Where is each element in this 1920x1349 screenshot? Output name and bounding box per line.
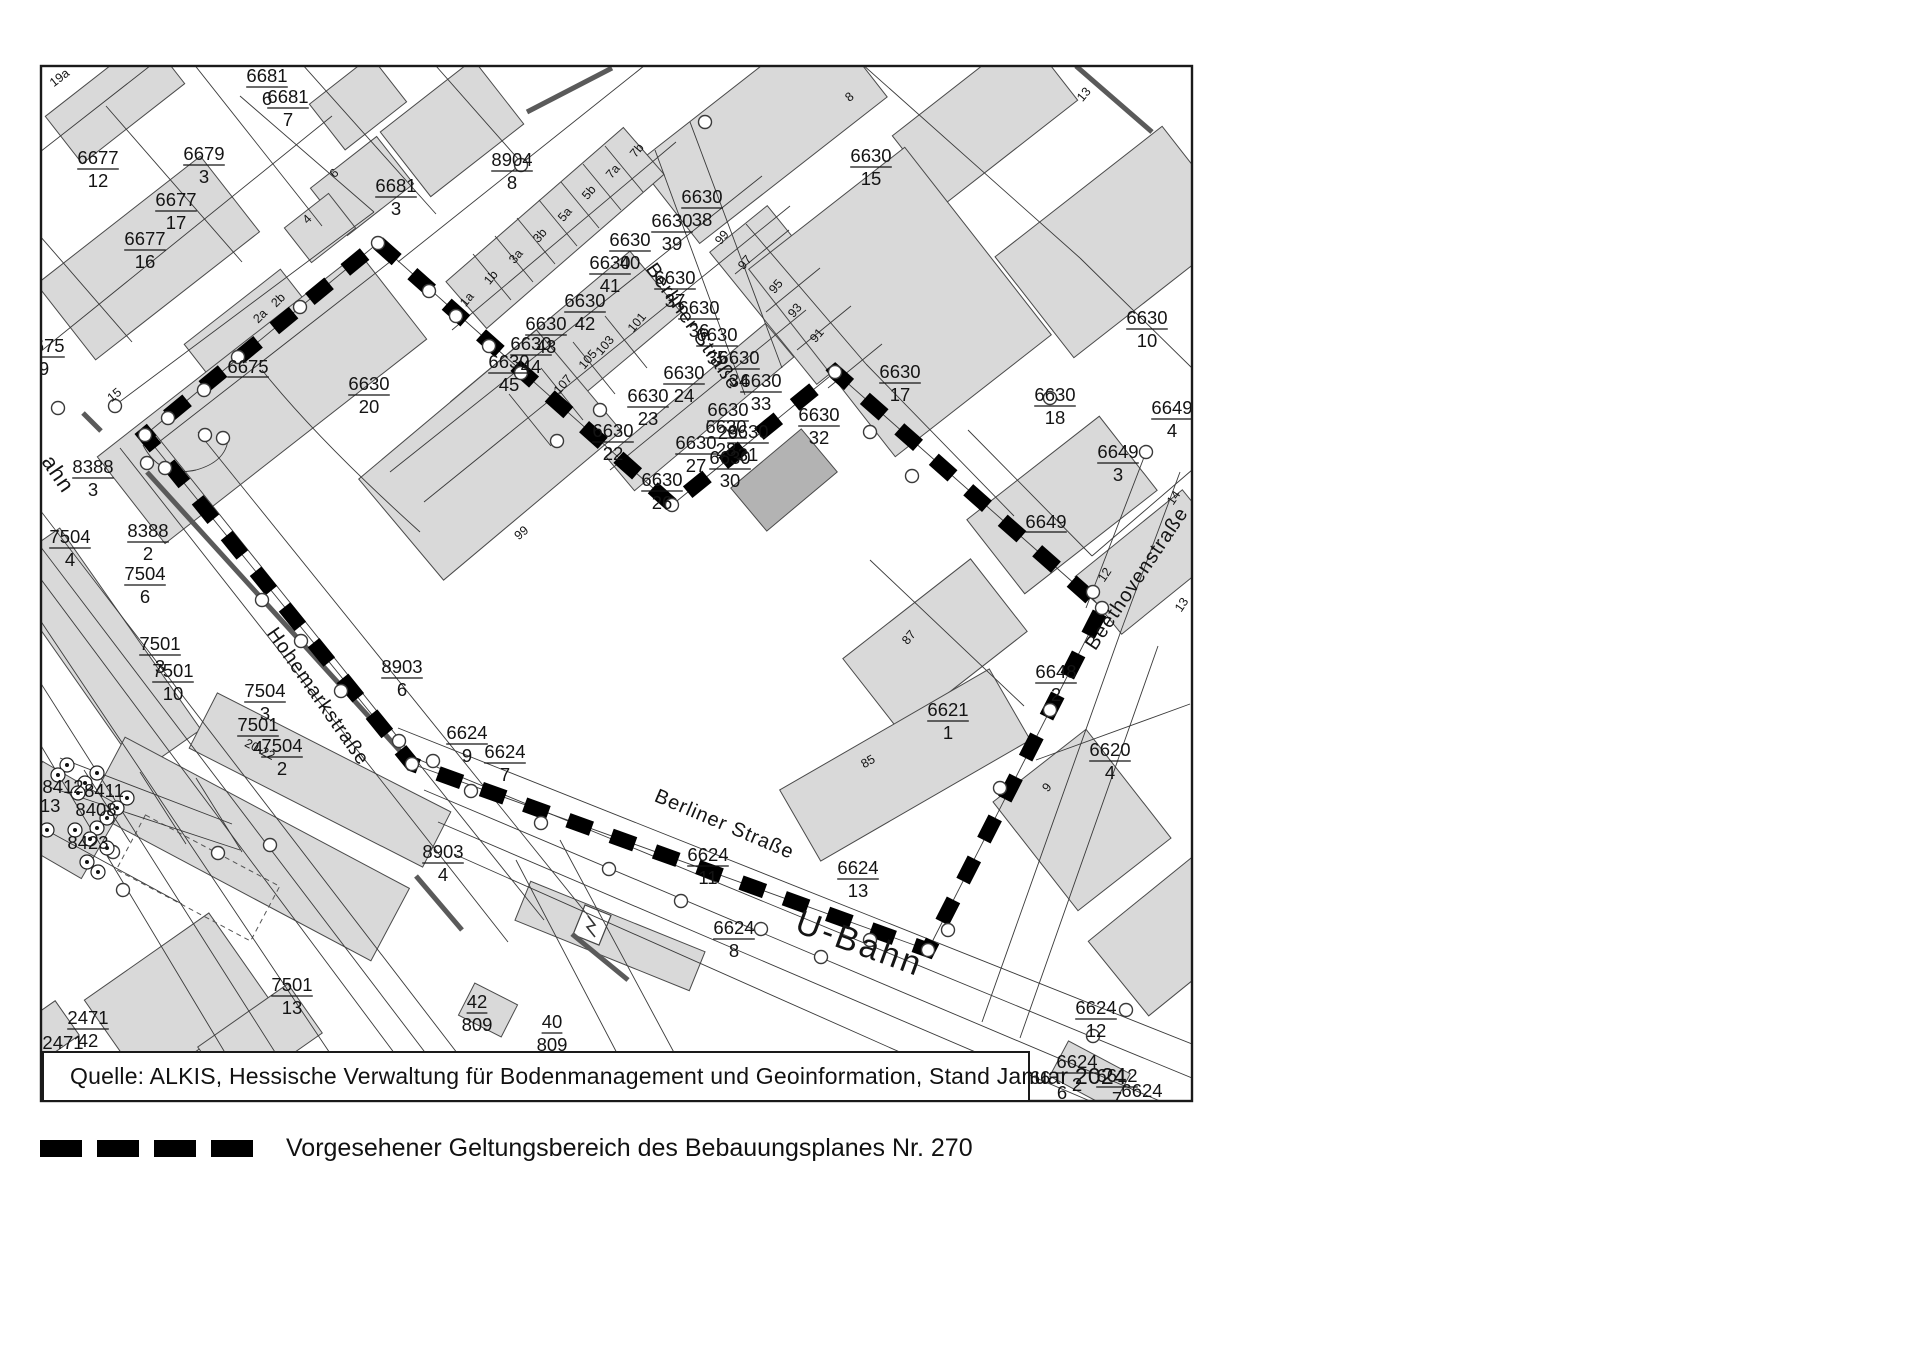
parcel-number: 8904: [491, 149, 532, 170]
parcel-number: 6675: [227, 356, 268, 377]
parcel-number: 42: [467, 991, 488, 1012]
parcel-denominator: 39: [662, 233, 683, 254]
boundary-point-circle: [199, 429, 212, 442]
legend: Vorgesehener Geltungsbereich des Bebauun…: [40, 1130, 973, 1166]
single-parcel-label: 8408: [75, 799, 116, 820]
parcel-number: 6677: [124, 228, 165, 249]
parcel-denominator: 27: [686, 455, 707, 476]
parcel-number: 6630: [850, 145, 891, 166]
parcel-number: 6624: [1075, 997, 1116, 1018]
parcel-denominator: 32: [809, 427, 830, 448]
parcel-number: 6681: [246, 65, 287, 86]
parcel-number: 8408: [75, 799, 116, 820]
parcel-number: 413: [30, 795, 61, 816]
parcel-number: 6630: [525, 313, 566, 334]
survey-marker-dot: [95, 826, 99, 830]
boundary-point-circle: [406, 758, 419, 771]
boundary-point-circle: [294, 301, 307, 314]
parcel-denominator: 17: [890, 384, 911, 405]
single-parcel-label: 6675: [227, 356, 269, 377]
boundary-point-circle: [372, 237, 385, 250]
parcel-number: 6630: [740, 370, 781, 391]
parcel-number: 8903: [381, 656, 422, 677]
parcel-denominator: 18: [1045, 407, 1066, 428]
survey-marker-dot: [85, 860, 89, 864]
parcel-number: 6624: [837, 857, 878, 878]
survey-marker-dot: [125, 796, 129, 800]
boundary-point-circle: [159, 462, 172, 475]
page: { "title": "Kartenausschnitt Geltungsber…: [0, 0, 1920, 1344]
parcel-denominator: 4: [65, 549, 75, 570]
boundary-point-circle: [1087, 586, 1100, 599]
boundary-point-circle: [829, 366, 842, 379]
parcel-number: 6630: [798, 404, 839, 425]
parcel-number: 7501: [139, 633, 180, 654]
parcel-number: 6681: [375, 175, 416, 196]
parcel-number: 8388: [127, 520, 168, 541]
map-container: 6681666817667712667936677176681389048667…: [0, 0, 1920, 1344]
legend-dash-icon: [211, 1140, 253, 1157]
single-parcel-label: 8423: [67, 832, 108, 853]
parcel-denominator: 2: [1051, 684, 1061, 705]
parcel-number: 6679: [183, 143, 224, 164]
boundary-dash-symbol: [40, 1140, 268, 1157]
parcel-number: 8412: [42, 776, 83, 797]
parcel-number: 40: [542, 1011, 563, 1032]
boundary-point-circle: [117, 884, 130, 897]
boundary-point-circle: [603, 863, 616, 876]
boundary-point-circle: [864, 426, 877, 439]
parcel-denominator: 7: [283, 109, 293, 130]
parcel-denominator: 4: [1167, 420, 1177, 441]
parcel-number: 2471: [67, 1007, 108, 1028]
boundary-point-circle: [535, 817, 548, 830]
parcel-denominator: 10: [1137, 330, 1158, 351]
parcel-number: 7504: [124, 563, 165, 584]
boundary-point-circle: [1120, 1004, 1133, 1017]
parcel-number: 6649: [1025, 511, 1066, 532]
parcel-denominator: 45: [499, 374, 520, 395]
boundary-point-circle: [465, 785, 478, 798]
source-box: Quelle: ALKIS, Hessische Verwaltung für …: [42, 1051, 1030, 1102]
single-parcel-label: 413: [30, 795, 61, 816]
boundary-point-circle: [198, 384, 211, 397]
parcel-number: 6630: [651, 210, 692, 231]
boundary-point-circle: [551, 435, 564, 448]
boundary-point-circle: [423, 285, 436, 298]
parcel-number: 6624: [1121, 1080, 1162, 1101]
boundary-point-circle: [141, 457, 154, 470]
survey-marker-dot: [65, 763, 69, 767]
parcel-number: 6675: [23, 335, 64, 356]
parcel-denominator: 2: [143, 543, 153, 564]
boundary-point-circle: [393, 735, 406, 748]
parcel-number: 6624: [687, 844, 728, 865]
parcel-number: 6630: [564, 290, 605, 311]
parcel-denominator: 30: [720, 470, 741, 491]
parcel-denominator: 33: [751, 393, 772, 414]
single-parcel-label: 8412: [42, 776, 83, 797]
parcel-number: 7504: [244, 680, 285, 701]
parcel-number: 8423: [67, 832, 108, 853]
parcel-number: 7501: [271, 974, 312, 995]
boundary-point-circle: [815, 951, 828, 964]
parcel-denominator: 17: [166, 212, 187, 233]
boundary-point-circle: [594, 404, 607, 417]
boundary-point-circle: [162, 412, 175, 425]
boundary-point-circle: [52, 402, 65, 415]
parcel-number: 7504: [49, 526, 90, 547]
parcel-number: 6677: [77, 147, 118, 168]
source-text: Quelle: ALKIS, Hessische Verwaltung für …: [70, 1063, 1127, 1090]
parcel-denominator: 9: [462, 745, 472, 766]
boundary-point-circle: [256, 594, 269, 607]
parcel-denominator: 12: [88, 170, 109, 191]
parcel-number: 6630: [879, 361, 920, 382]
boundary-point-circle: [994, 782, 1007, 795]
parcel-number: 6624: [713, 917, 754, 938]
single-parcel-label: 2471: [42, 1032, 84, 1053]
parcel-denominator: 12: [1086, 1020, 1107, 1041]
parcel-number: 6630: [627, 385, 668, 406]
boundary-point-circle: [906, 470, 919, 483]
parcel-number: 6620: [1089, 739, 1130, 760]
boundary-point-circle: [335, 685, 348, 698]
boundary-point-circle: [212, 847, 225, 860]
parcel-number: 6630: [1126, 307, 1167, 328]
parcel-number: 6630: [589, 252, 630, 273]
boundary-point-circle: [450, 310, 463, 323]
parcel-number: 8903: [422, 841, 463, 862]
parcel-number: 2471: [42, 1032, 83, 1053]
parcel-number: 6630: [663, 362, 704, 383]
parcel-denominator: 3: [88, 479, 98, 500]
parcel-number: 6630: [592, 420, 633, 441]
parcel-denominator: 20: [359, 396, 380, 417]
parcel-denominator: 4: [1105, 762, 1115, 783]
parcel-number: 6624: [446, 722, 487, 743]
parcel-number: 6630: [609, 229, 650, 250]
parcel-number: 6648: [1035, 661, 1076, 682]
legend-dash-icon: [154, 1140, 196, 1157]
parcel-denominator: 8: [729, 940, 739, 961]
parcel-denominator: 11: [698, 867, 717, 888]
boundary-point-circle: [264, 839, 277, 852]
single-parcel-label: 8411: [84, 780, 124, 801]
parcel-denominator: 3: [391, 198, 401, 219]
parcel-number: 6630: [1034, 384, 1075, 405]
parcel-denominator: 10: [163, 683, 184, 704]
boundary-point-circle: [427, 755, 440, 768]
parcel-denominator: 26: [652, 492, 673, 513]
parcel-denominator: 1: [943, 722, 953, 743]
boundary-point-circle: [1044, 704, 1057, 717]
parcel-number: 7501: [237, 714, 278, 735]
parcel-number: 6630: [707, 399, 748, 420]
parcel-denominator: 13: [282, 997, 303, 1018]
boundary-point-circle: [755, 923, 768, 936]
parcel-denominator: 6: [140, 586, 150, 607]
parcel-number: 6649: [1151, 397, 1192, 418]
boundary-point-circle: [139, 429, 152, 442]
parcel-number: 6630: [727, 421, 768, 442]
parcel-number: 6677: [155, 189, 196, 210]
parcel-denominator: 22: [603, 443, 624, 464]
legend-label: Vorgesehener Geltungsbereich des Bebauun…: [286, 1134, 973, 1163]
parcel-number: 6630: [641, 469, 682, 490]
boundary-point-circle: [942, 924, 955, 937]
boundary-point-circle: [217, 432, 230, 445]
legend-dash-icon: [40, 1140, 82, 1157]
parcel-number: 8388: [72, 456, 113, 477]
parcel-denominator: 16: [135, 251, 156, 272]
parcel-denominator: 24: [674, 385, 695, 406]
parcel-denominator: 23: [638, 408, 659, 429]
parcel-denominator: 15: [861, 168, 882, 189]
survey-marker-dot: [96, 870, 100, 874]
parcel-number: 6630: [709, 447, 750, 468]
legend-dash-icon: [97, 1140, 139, 1157]
parcel-denominator: 809: [462, 1014, 493, 1035]
parcel-denominator: 13: [848, 880, 869, 901]
single-parcel-label: 6649: [1025, 511, 1067, 532]
boundary-point-circle: [675, 895, 688, 908]
single-parcel-label: 6624: [1121, 1080, 1163, 1101]
parcel-number: 6621: [927, 699, 968, 720]
parcel-denominator: 38: [692, 209, 713, 230]
parcel-number: 6630: [681, 186, 722, 207]
survey-marker-dot: [45, 828, 49, 832]
parcel-denominator: 42: [575, 313, 596, 334]
survey-marker-dot: [95, 771, 99, 775]
parcel-number: 6681: [267, 86, 308, 107]
parcel-number: 6624: [484, 741, 525, 762]
parcel-denominator: 2: [277, 758, 287, 779]
parcel-denominator: 7: [500, 764, 510, 785]
boundary-point-circle: [699, 116, 712, 129]
parcel-number: 6630: [488, 351, 529, 372]
parcel-denominator: 3: [199, 166, 209, 187]
parcel-denominator: 6: [397, 679, 407, 700]
parcel-number: 6630: [348, 373, 389, 394]
parcel-denominator: 3: [1113, 464, 1123, 485]
parcel-denominator: 4: [438, 864, 448, 885]
parcel-denominator: 8: [507, 172, 517, 193]
boundary-point-circle: [1140, 446, 1153, 459]
parcel-number: 7501: [152, 660, 193, 681]
parcel-number: 6649: [1097, 441, 1138, 462]
parcel-number: 8411: [84, 780, 124, 801]
